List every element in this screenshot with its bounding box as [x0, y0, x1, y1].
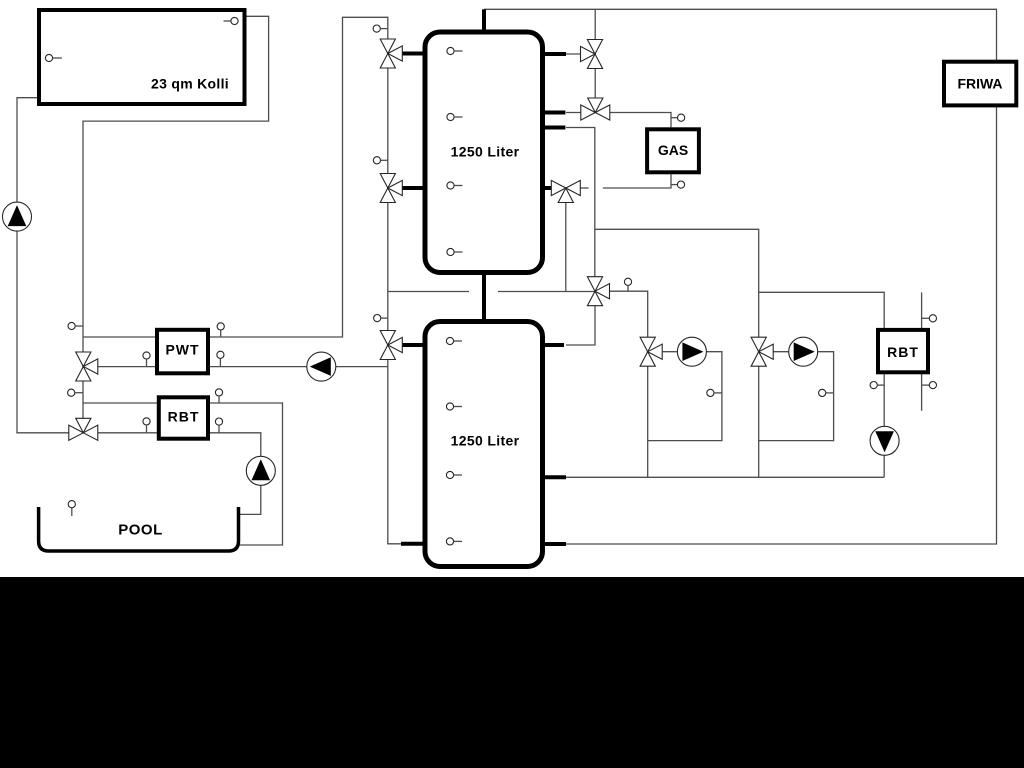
svg-text:RBT: RBT [887, 344, 919, 360]
svg-text:FRIWA: FRIWA [957, 76, 1002, 92]
svg-text:GAS: GAS [658, 142, 688, 158]
svg-text:1250 Liter: 1250 Liter [451, 144, 520, 160]
svg-text:23 qm Kolli: 23 qm Kolli [151, 76, 229, 92]
svg-text:1250 Liter: 1250 Liter [451, 433, 520, 449]
svg-text:POOL: POOL [118, 522, 163, 539]
svg-text:PWT: PWT [165, 342, 199, 358]
svg-text:RBT: RBT [168, 409, 200, 425]
